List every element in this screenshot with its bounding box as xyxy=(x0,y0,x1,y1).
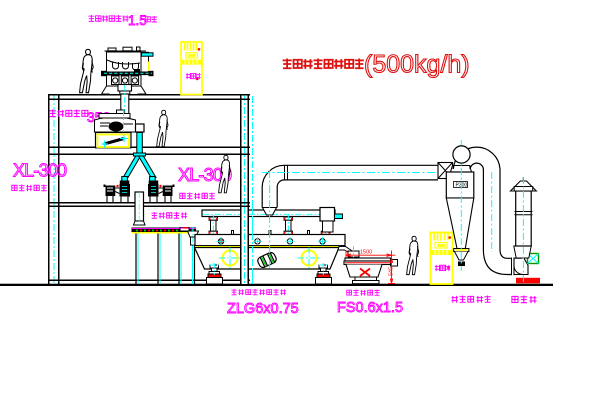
svg-text:ZLG6x0.75: ZLG6x0.75 xyxy=(227,301,299,317)
svg-text:1.5: 1.5 xyxy=(128,13,147,28)
svg-text:545: 545 xyxy=(389,267,395,276)
svg-text:FS0.6x1.5: FS0.6x1.5 xyxy=(337,300,403,316)
svg-text:XL-300: XL-300 xyxy=(13,161,67,181)
svg-text:1500: 1500 xyxy=(360,250,372,256)
svg-text:(500kg/h): (500kg/h) xyxy=(364,51,470,79)
